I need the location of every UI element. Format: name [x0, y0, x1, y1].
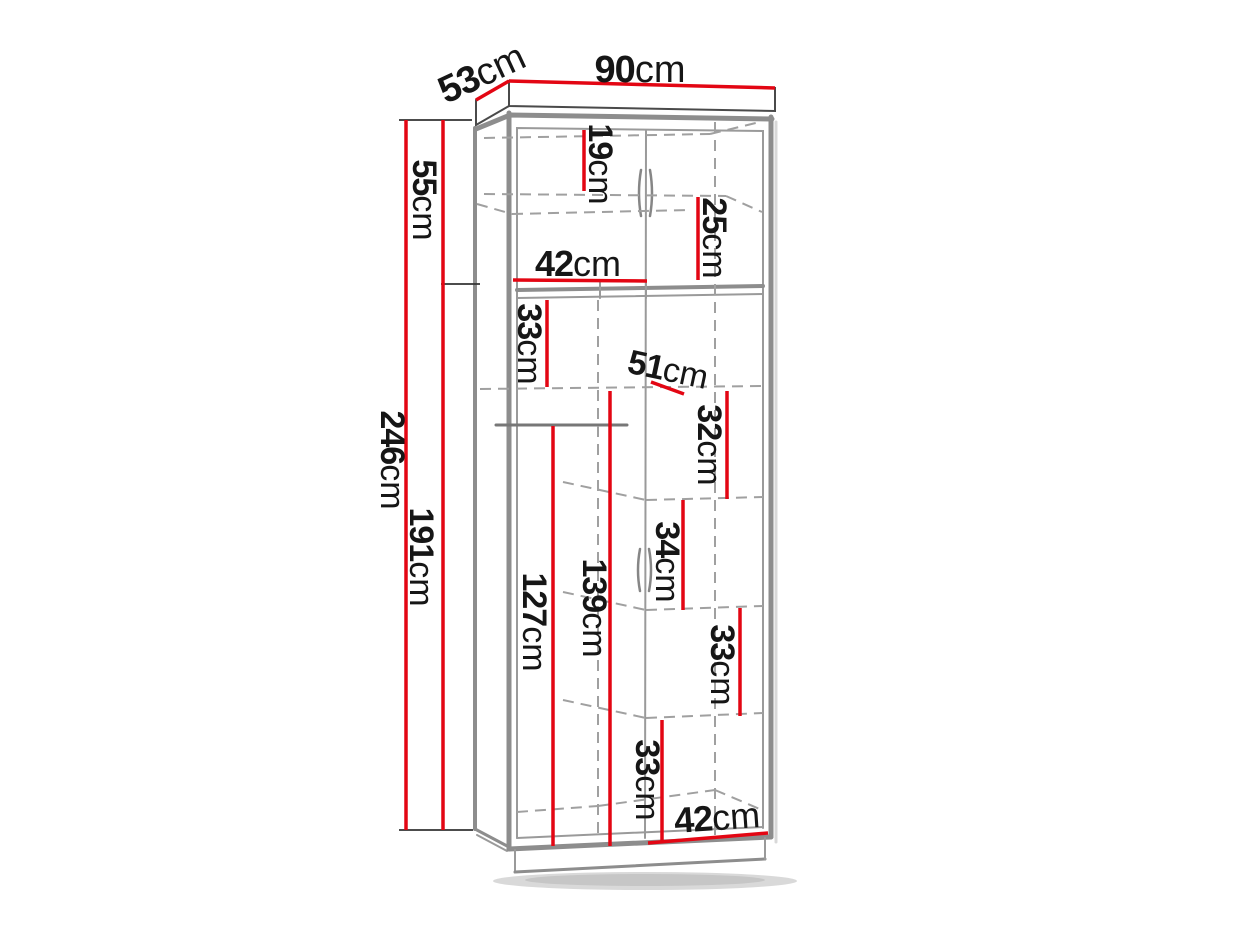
dim-label-overall-height-number: 246	[373, 410, 411, 464]
dim-label-19-number: 19	[581, 123, 619, 159]
dashed-shelf3	[646, 606, 763, 610]
dim-label-top-section-height-unit: cm	[405, 195, 443, 240]
plinth-bottom-edge	[515, 859, 765, 872]
dim-label-42-bottom: 42cm	[673, 794, 762, 841]
dim-label-33-upper: 33cm	[510, 303, 548, 384]
side-panel-bottom-outer	[475, 829, 509, 847]
dim-label-top-section-height-number: 55	[405, 159, 443, 195]
dashed-shelf4	[646, 713, 763, 718]
dim-label-34: 34cm	[648, 521, 686, 602]
dim-label-139-unit: cm	[575, 612, 613, 657]
dim-label-42-bottom-unit: cm	[711, 794, 762, 838]
dashed-bottom-back-left	[517, 806, 598, 812]
dim-label-127-unit: cm	[515, 626, 553, 671]
wardrobe-dimension-diagram: 90cm 53cm 246cm 55cm 191cm 19cm 25cm 42c…	[0, 0, 1251, 938]
dim-label-25: 25cm	[695, 197, 733, 278]
dim-label-51-unit: cm	[659, 350, 711, 397]
dim-label-139: 139cm	[575, 558, 613, 657]
dashed-back-top-corner	[710, 122, 760, 134]
dim-label-32: 32cm	[690, 404, 728, 485]
dashed-shelf2-diag	[563, 482, 646, 500]
dim-label-139-number: 139	[575, 558, 613, 612]
dim-label-lower-section-height: 191cm	[402, 507, 440, 606]
dim-label-42-top-unit: cm	[573, 243, 621, 284]
dim-label-32-number: 32	[690, 404, 728, 440]
dashed-shelf2	[646, 497, 763, 500]
dim-label-42-bottom-number: 42	[673, 797, 714, 841]
dim-label-25-unit: cm	[695, 233, 733, 278]
dim-label-overall-height-unit: cm	[373, 464, 411, 509]
dim-label-top-section-height: 55cm	[405, 159, 443, 240]
floor-shadow-core	[525, 874, 765, 886]
dim-label-34-number: 34	[648, 521, 686, 558]
handle-top-left	[639, 170, 641, 216]
dim-label-33-bottom-unit: cm	[628, 775, 666, 820]
dim-label-42-top-number: 42	[535, 243, 573, 284]
dim-label-33-upper-unit: cm	[510, 339, 548, 384]
dim-label-34-unit: cm	[648, 557, 686, 602]
dim-label-lower-section-height-unit: cm	[402, 561, 440, 606]
handle-top-right	[650, 170, 652, 216]
top-shelf-front	[517, 286, 763, 290]
handle-bottom-left	[638, 549, 640, 591]
front-bottom-edge	[509, 837, 771, 849]
door-divider	[645, 131, 646, 838]
dim-label-33-bottom: 33cm	[628, 739, 666, 820]
carcass-top-edge	[476, 115, 772, 129]
dim-label-33-right: 33cm	[703, 624, 741, 705]
dim-label-overall-width-number: 90	[595, 49, 635, 91]
dim-label-33-upper-number: 33	[510, 303, 548, 339]
diagram-canvas: 90cm 53cm 246cm 55cm 191cm 19cm 25cm 42c…	[0, 0, 1251, 938]
dim-label-33-bottom-number: 33	[628, 739, 666, 775]
dashed-top-shelf-front	[512, 210, 688, 214]
dim-label-overall-height: 246cm	[373, 410, 411, 509]
dim-label-42-top: 42cm	[535, 243, 621, 284]
dashed-shelf4-diag	[563, 700, 646, 718]
dimension-labels: 90cm 53cm 246cm 55cm 191cm 19cm 25cm 42c…	[373, 36, 761, 841]
dim-label-32-unit: cm	[690, 440, 728, 485]
dim-label-127-number: 127	[515, 572, 553, 626]
dim-label-overall-width-unit: cm	[635, 49, 686, 91]
top-shelf-under	[517, 294, 763, 298]
dashed-shelf-51-level	[480, 386, 763, 389]
dim-label-overall-width: 90cm	[595, 49, 686, 91]
dim-label-51: 51cm	[624, 343, 711, 397]
dim-label-19: 19cm	[581, 123, 619, 204]
dim-label-lower-section-height-number: 191	[402, 507, 440, 561]
dim-label-25-number: 25	[695, 197, 733, 233]
dim-label-127: 127cm	[515, 572, 553, 671]
dim-label-33-right-unit: cm	[703, 660, 741, 705]
dim-label-19-unit: cm	[581, 159, 619, 204]
dim-label-33-right-number: 33	[703, 624, 741, 660]
